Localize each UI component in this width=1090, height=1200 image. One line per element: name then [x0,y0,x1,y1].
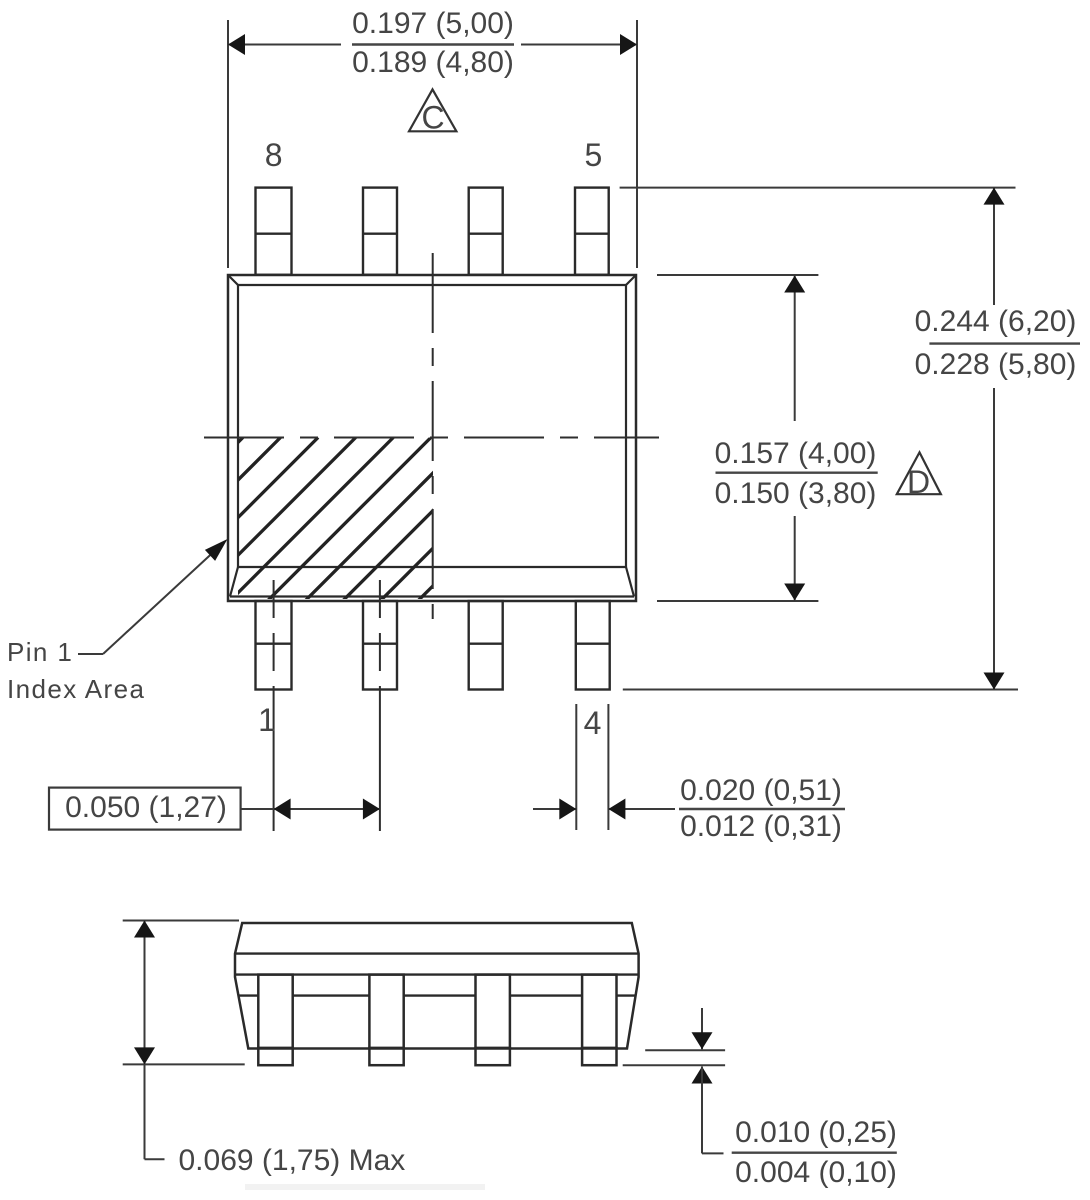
svg-text:0.004 (0,10): 0.004 (0,10) [735,1156,897,1189]
svg-text:1: 1 [258,702,276,738]
svg-text:0.244 (6,20): 0.244 (6,20) [915,305,1077,338]
svg-text:5: 5 [585,137,603,173]
svg-text:Index Area: Index Area [7,674,145,704]
svg-text:4: 4 [584,705,602,741]
svg-text:0.020 (0,51): 0.020 (0,51) [680,774,842,807]
svg-text:0.012 (0,31): 0.012 (0,31) [680,810,842,843]
svg-text:0.189 (4,80): 0.189 (4,80) [352,46,514,79]
svg-text:0.197 (5,00): 0.197 (5,00) [352,7,514,40]
svg-text:C: C [421,99,444,135]
svg-text:0.150 (3,80): 0.150 (3,80) [715,477,877,510]
svg-text:Pin 1: Pin 1 [7,637,73,667]
svg-text:0.050 (1,27): 0.050 (1,27) [65,791,227,824]
svg-text:0.069 (1,75) Max: 0.069 (1,75) Max [179,1144,406,1177]
svg-text:0.228 (5,80): 0.228 (5,80) [915,348,1077,381]
svg-text:8: 8 [265,137,283,173]
svg-text:0.010 (0,25): 0.010 (0,25) [735,1116,897,1149]
svg-text:D: D [907,464,930,500]
svg-text:0.157 (4,00): 0.157 (4,00) [715,437,877,470]
